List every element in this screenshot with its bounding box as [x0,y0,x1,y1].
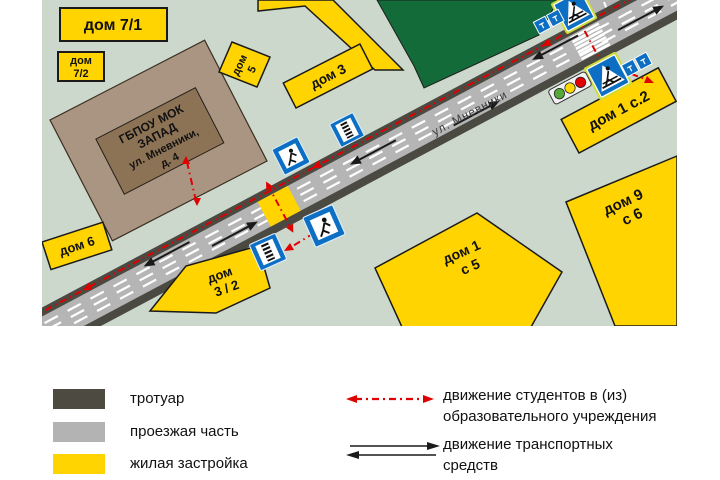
legend-label-housing: жилая застройка [130,455,248,472]
legend-label-sidewalk: тротуар [130,390,184,407]
svg-text:7/2: 7/2 [73,68,88,80]
svg-text:дом: дом [70,55,92,67]
legend-swatch-housing [53,454,105,474]
legend-swatch-roadway [53,422,105,442]
route-scheme-page: ул. Мневники ГБПОУ МОК ЗАПАД ул. Мневник… [0,0,720,480]
legend-label-roadway: проезжая часть [130,423,239,440]
legend-swatch-sidewalk [53,389,105,409]
route-map: ул. Мневники ГБПОУ МОК ЗАПАД ул. Мневник… [0,0,720,340]
building-dom-7-2: дом 7/2 [58,52,104,81]
legend-label-student-route: движение студентов в (из) образовательно… [443,385,656,427]
legend-label-vehicle-route: движение транспортных средств [443,434,613,476]
building-dom-7-1: дом 7/1 [60,8,167,41]
svg-text:дом 7/1: дом 7/1 [84,17,142,34]
legend-vehicle-route-icon [346,440,440,467]
legend-student-route-icon [346,392,434,410]
